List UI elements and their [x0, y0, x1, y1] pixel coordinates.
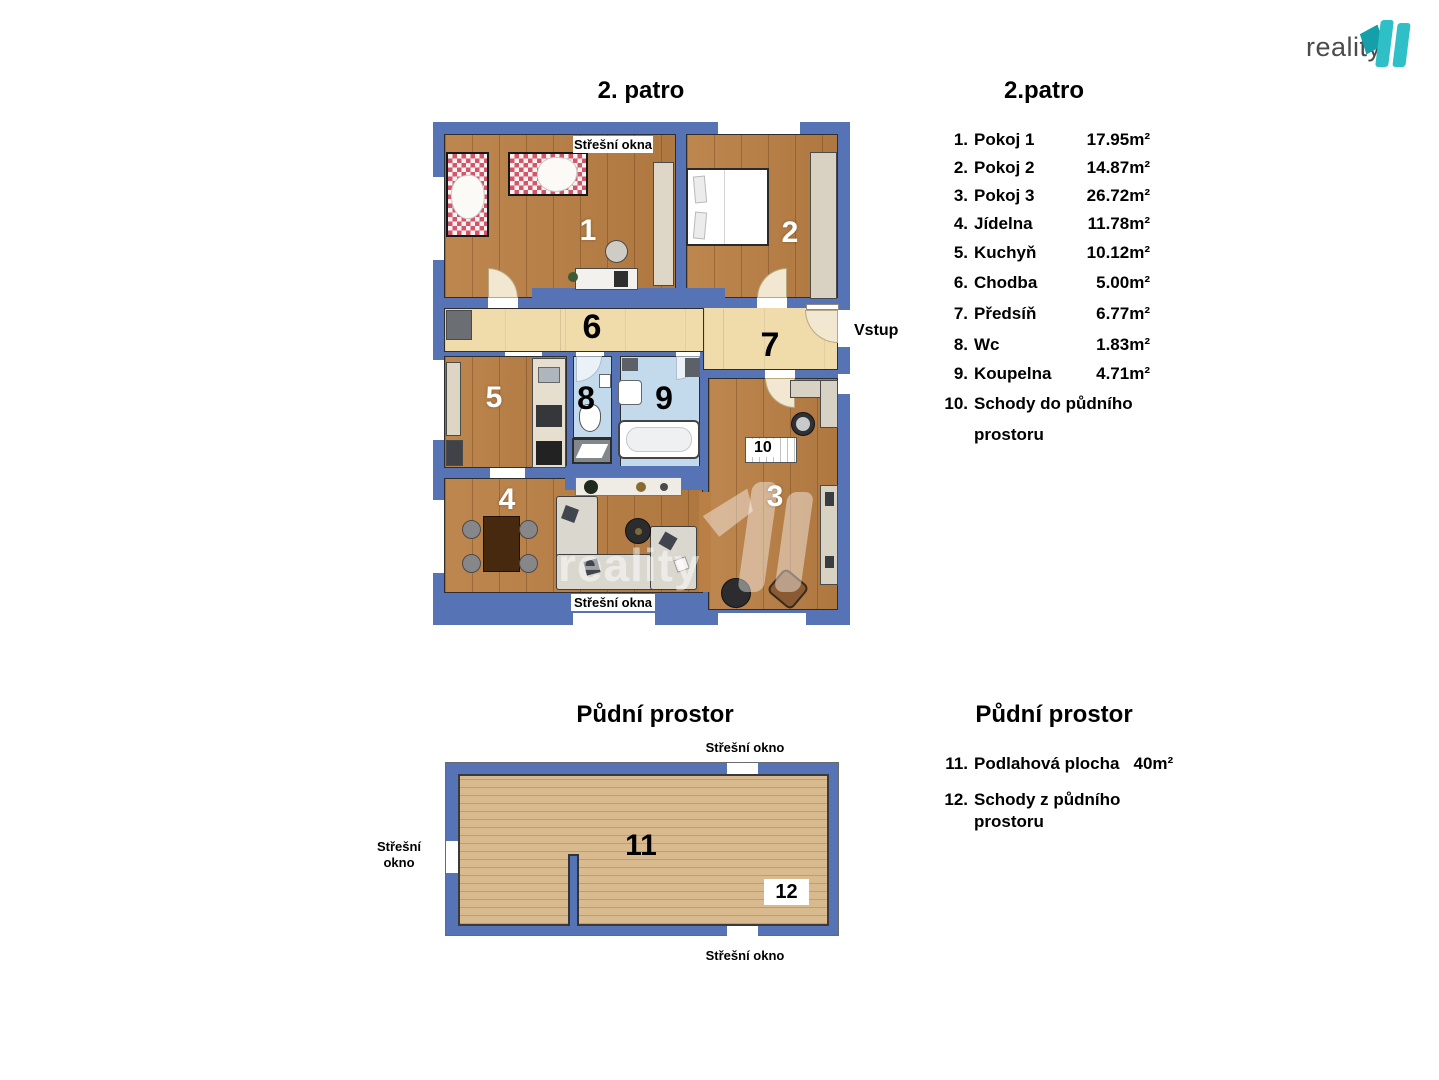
room-label-5: 5 — [474, 381, 514, 415]
bathtub-basin — [626, 427, 692, 452]
legend-num: 2. — [935, 157, 968, 178]
legend-row: 2.Pokoj 214.87m² — [935, 157, 1150, 178]
floor-seam — [560, 309, 561, 351]
pillow — [693, 176, 707, 204]
legend-row-continued: prostoru — [974, 424, 1150, 445]
upper-legend-title: 2.patro — [944, 77, 1144, 105]
legend-area: 10.12m² — [1087, 242, 1150, 263]
legend-row: 5.Kuchyň10.12m² — [935, 242, 1150, 263]
watermark-text: reality — [558, 538, 701, 592]
bed-double — [686, 168, 769, 246]
window-gap-right — [838, 374, 850, 394]
legend-row: 4.Jídelna11.78m² — [935, 213, 1150, 234]
legend-num: 1. — [935, 129, 968, 150]
shelf — [820, 485, 838, 585]
legend-area: 40m² — [1133, 754, 1173, 773]
legend-area: 6.77m² — [1096, 303, 1150, 324]
legend-row: 12.Schody z půdního — [935, 789, 1195, 810]
washing-machine — [572, 438, 612, 464]
partition-wall — [568, 854, 579, 926]
legend-num: 9. — [935, 363, 968, 384]
blanket-seam — [724, 170, 725, 244]
room-label-6: 6 — [572, 308, 612, 347]
interior-wall — [532, 288, 725, 308]
legend-num: 7. — [935, 303, 968, 324]
computer — [614, 271, 628, 287]
dining-chair — [462, 554, 481, 573]
sink — [618, 380, 642, 405]
roof-window-label-left-line1: Střešní — [354, 839, 444, 855]
door-gap-room3 — [765, 370, 795, 378]
legend-row: 8.Wc1.83m² — [935, 334, 1150, 355]
legend-area: 14.87m² — [1087, 157, 1150, 178]
legend-name: Předsíň — [974, 304, 1036, 323]
room-label-1: 1 — [568, 214, 608, 248]
window-gap-top — [727, 763, 758, 774]
room-label-12: 12 — [775, 881, 797, 903]
roof-windows-label-top: Střešní okna — [573, 136, 653, 153]
legend-row: 1.Pokoj 117.95m² — [935, 129, 1150, 150]
legend-row: 7.Předsíň6.77m² — [935, 303, 1150, 324]
legend-area: 26.72m² — [1087, 185, 1150, 206]
stairs-up: 10 — [745, 437, 797, 463]
stairs-up-label: 10 — [750, 439, 776, 457]
legend-name: Koupelna — [974, 364, 1051, 383]
legend-name: Pokoj 2 — [974, 158, 1034, 177]
legend-area: 5.00m² — [1096, 272, 1150, 293]
legend-name: Pokoj 3 — [974, 186, 1034, 205]
brand-logo: reality — [1306, 18, 1426, 70]
desk — [575, 268, 638, 290]
window-gap-top — [718, 122, 800, 134]
brand-11-bar-icon — [1392, 23, 1410, 67]
room-label-11: 11 — [621, 829, 661, 863]
roof-window-label-top: Střešní okno — [645, 740, 845, 756]
roof-window-label-left-line2: okno — [354, 855, 444, 871]
legend-row: 9.Koupelna4.71m² — [935, 363, 1150, 384]
legend-name: Pokoj 1 — [974, 130, 1034, 149]
legend-area: 11.78m² — [1088, 213, 1150, 234]
stove — [536, 405, 562, 427]
room-label-3: 3 — [755, 480, 795, 514]
bed-single — [446, 152, 489, 237]
legend-row: 11.Podlahová plocha40m² — [935, 753, 1195, 774]
room-label-7: 7 — [750, 326, 790, 365]
room-label-2: 2 — [770, 216, 810, 250]
plant — [584, 480, 598, 494]
door-gap-room4 — [490, 468, 525, 478]
cabinet-dark — [622, 358, 638, 371]
legend-num: 10. — [935, 393, 968, 414]
legend-name: Chodba — [974, 273, 1037, 292]
legend-num: 11. — [935, 753, 968, 774]
window-gap-left — [433, 360, 444, 440]
cabinet — [446, 362, 461, 436]
decor — [636, 482, 646, 492]
entrance-door-leaf — [806, 304, 839, 310]
chair — [605, 240, 628, 263]
bed-blanket — [448, 173, 488, 221]
legend-name: Jídelna — [974, 214, 1033, 233]
kitchen-counter — [532, 358, 566, 468]
sideboard — [575, 477, 682, 496]
office-chair — [791, 412, 815, 436]
dining-chair — [519, 520, 538, 539]
decor — [635, 528, 642, 535]
window-gap-bottom — [727, 926, 758, 937]
lower-plan-title: Půdní prostor — [555, 701, 755, 729]
bed-single — [508, 152, 588, 196]
door-gap-room2 — [757, 298, 787, 308]
cabinet-dark — [685, 358, 700, 377]
roof-window-label-left: Střešní okno — [354, 839, 444, 871]
shelf-item — [825, 556, 834, 568]
desk — [820, 380, 838, 428]
window-gap-bottom — [573, 613, 655, 625]
lower-legend-title: Půdní prostor — [954, 701, 1154, 729]
floor-seam — [723, 309, 724, 369]
legend-num: 4. — [935, 213, 968, 234]
decor — [660, 483, 668, 491]
legend-row: 10.Schody do půdního — [935, 393, 1150, 414]
legend-num: 5. — [935, 242, 968, 263]
attic-floor-plan: 11 12 — [445, 762, 839, 936]
roof-windows-label-bottom: Střešní okna — [571, 594, 655, 611]
wardrobe — [653, 162, 674, 286]
dining-chair — [462, 520, 481, 539]
office-chair-seat — [796, 417, 810, 431]
legend-num: 3. — [935, 185, 968, 206]
legend-area: 4.71m² — [1096, 363, 1150, 384]
bed-blanket — [535, 155, 578, 194]
legend-name-line2: prostoru — [974, 425, 1044, 444]
sink — [538, 367, 560, 383]
legend-name: Wc — [974, 335, 1000, 354]
washer-panel — [576, 444, 609, 458]
cabinet — [446, 310, 472, 340]
legend-name: Podlahová plocha — [974, 754, 1119, 773]
legend-num: 8. — [935, 334, 968, 355]
fridge — [446, 440, 463, 466]
legend-area: 17.95m² — [1087, 129, 1150, 150]
upper-floor-plan: 10 reality S — [433, 122, 850, 625]
room-3-4-opening — [699, 492, 711, 592]
entrance-label: Vstup — [854, 322, 898, 340]
dining-chair — [519, 554, 538, 573]
legend-row: 3.Pokoj 326.72m² — [935, 185, 1150, 206]
legend-num: 6. — [935, 272, 968, 293]
pillow — [693, 212, 707, 240]
upper-plan-title: 2. patro — [541, 77, 741, 105]
door-gap-room1 — [488, 298, 518, 308]
legend-name: Schody do půdního — [974, 394, 1133, 413]
legend-row: 6.Chodba5.00m² — [935, 272, 1150, 293]
room-label-9: 9 — [644, 380, 684, 417]
wardrobe — [810, 152, 837, 299]
roof-window-label-bottom: Střešní okno — [645, 948, 845, 964]
bathtub — [618, 420, 700, 459]
legend-name: Schody z půdního — [974, 790, 1120, 809]
window-gap-left — [433, 177, 444, 260]
door-gap-room5 — [505, 352, 542, 356]
legend-num: 12. — [935, 789, 968, 810]
window-gap-left — [433, 500, 444, 573]
plant — [568, 272, 578, 282]
room-label-4: 4 — [487, 483, 527, 517]
room-label-8: 8 — [566, 380, 606, 417]
entrance-door-gap — [838, 310, 850, 347]
stairs-down-box: 12 — [764, 879, 809, 905]
window-gap-bottom — [718, 613, 806, 625]
legend-name: Kuchyň — [974, 243, 1036, 262]
appliance — [536, 441, 562, 465]
legend-row-continued: prostoru — [974, 811, 1150, 832]
legend-area: 1.83m² — [1096, 334, 1150, 355]
legend-name-line2: prostoru — [974, 812, 1044, 831]
dining-table — [483, 516, 520, 572]
floorplan-page: reality 2. patro 2.patro Půdní prostor P… — [0, 0, 1439, 1080]
shelf-item — [825, 492, 834, 506]
window-gap-left — [446, 841, 458, 873]
